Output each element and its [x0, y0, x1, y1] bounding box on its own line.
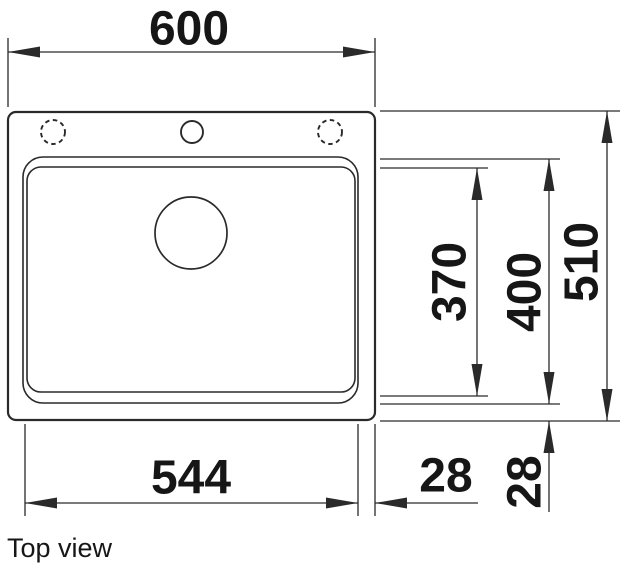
dimension-bowl-inner-depth: 370 — [380, 168, 488, 396]
dimension-label-28-horizontal: 28 — [419, 449, 472, 502]
dimension-cutout-width: 544 — [25, 424, 358, 516]
arrowhead-up — [472, 168, 483, 200]
arrowhead-down — [544, 372, 555, 404]
dimension-label-400: 400 — [498, 252, 551, 332]
bowl-rim-inner — [27, 167, 355, 392]
view-caption: Top view — [7, 533, 113, 563]
sink-outline — [8, 112, 375, 420]
dimension-offset-bottom: 28 — [498, 421, 554, 512]
arrowhead-down — [602, 389, 613, 421]
arrowhead-right — [326, 498, 358, 509]
arrowhead-left — [375, 498, 407, 509]
arrowhead-right — [343, 47, 375, 58]
bowl-rim-outer — [23, 157, 358, 403]
drawing-canvas: 600 544 28 — [0, 0, 625, 569]
drain-hole — [155, 197, 227, 269]
tap-hole-center — [181, 121, 203, 143]
dimension-label-510: 510 — [555, 222, 608, 302]
dimension-label-544: 544 — [151, 451, 231, 504]
arrowhead-up — [544, 421, 555, 453]
tap-hole-right-optional — [318, 120, 342, 144]
dimension-overall-width: 600 — [8, 2, 375, 107]
sink-technical-drawing: 600 544 28 — [0, 0, 625, 569]
arrowhead-left — [8, 47, 40, 58]
dimension-label-370: 370 — [423, 242, 476, 322]
arrowhead-up — [544, 159, 555, 191]
dimension-offset-right: 28 — [375, 424, 478, 516]
arrowhead-down — [472, 364, 483, 396]
arrowhead-left — [25, 498, 57, 509]
sink-outer-edge — [8, 112, 375, 420]
tap-hole-left-optional — [41, 120, 65, 144]
dimension-label-600: 600 — [149, 2, 229, 55]
dimension-label-28-vertical: 28 — [498, 455, 551, 508]
arrowhead-up — [602, 111, 613, 143]
